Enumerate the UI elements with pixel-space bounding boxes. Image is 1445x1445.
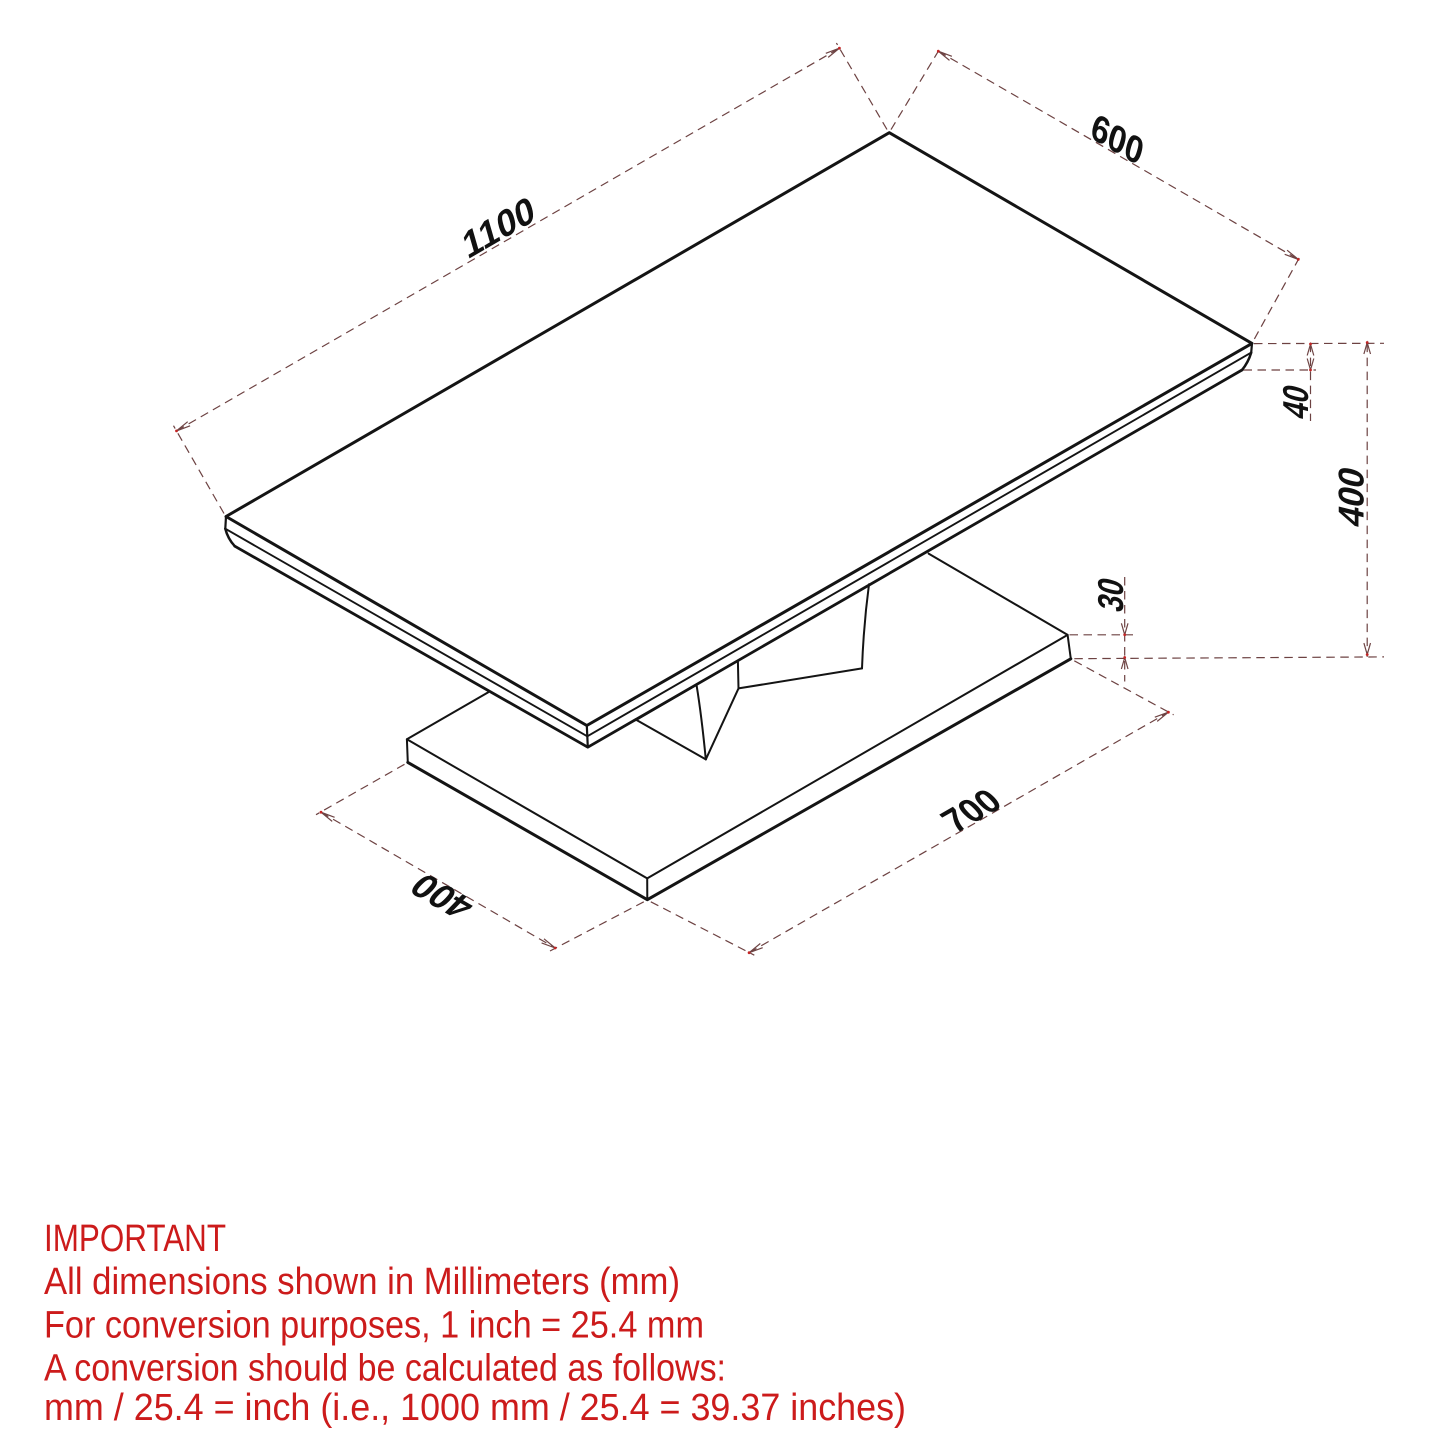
svg-text:IMPORTANT: IMPORTANT [44, 1218, 226, 1260]
svg-text:400: 400 [1331, 463, 1371, 531]
svg-text:For conversion purposes, 1 inc: For conversion purposes, 1 inch = 25.4 m… [44, 1305, 704, 1347]
svg-text:mm / 25.4 = inch (i.e., 1000 m: mm / 25.4 = inch (i.e., 1000 mm / 25.4 =… [44, 1387, 906, 1429]
svg-text:A conversion should be calcula: A conversion should be calculated as fol… [44, 1348, 726, 1390]
svg-text:All dimensions shown in Millim: All dimensions shown in Millimeters (mm) [44, 1261, 680, 1303]
